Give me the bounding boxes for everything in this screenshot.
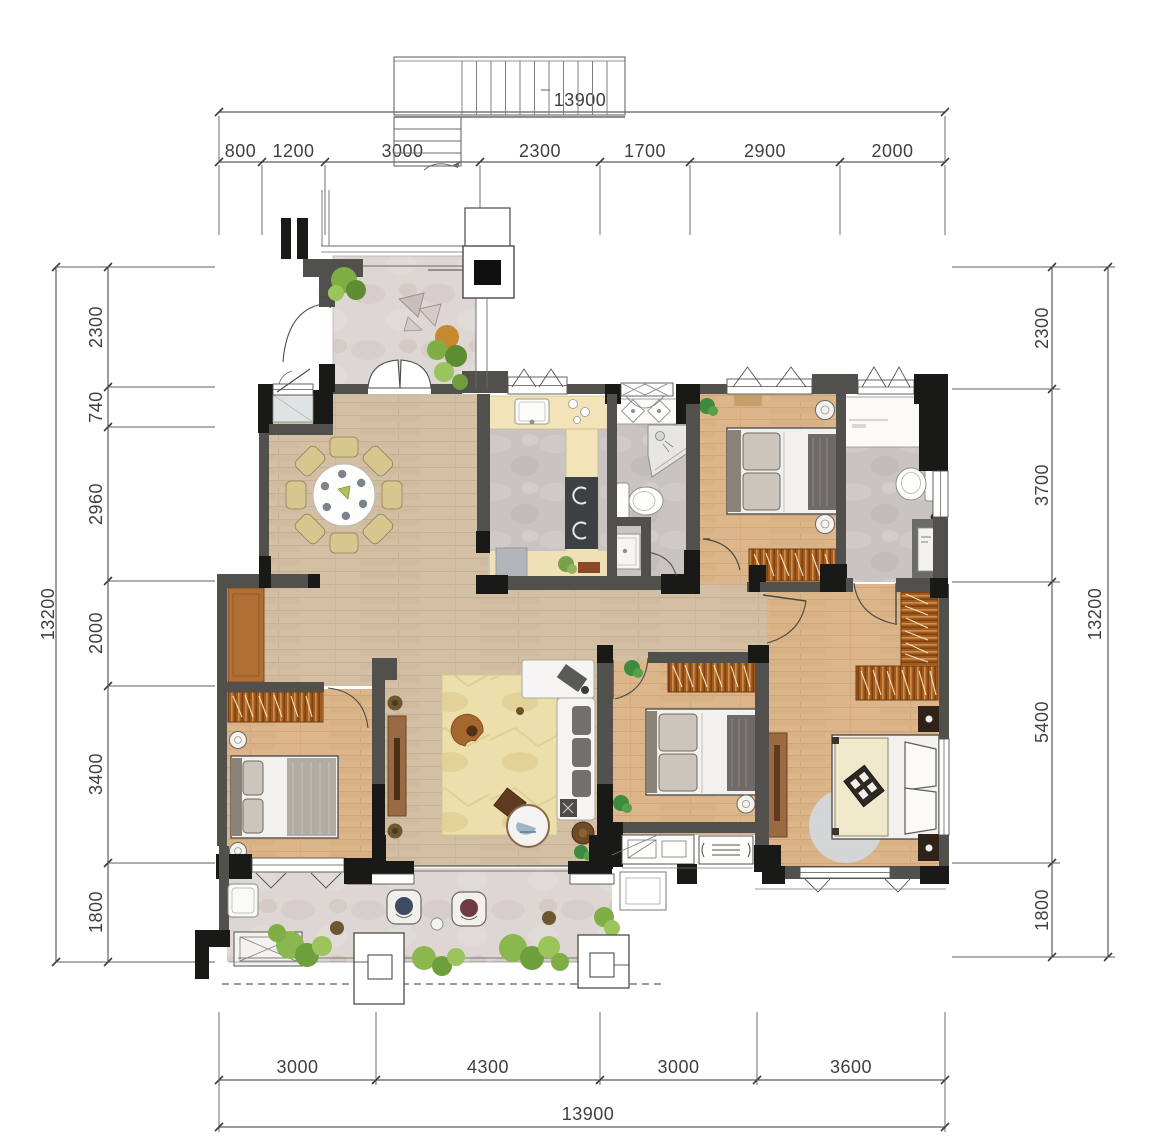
svg-text:1700: 1700	[624, 141, 666, 161]
svg-text:2900: 2900	[744, 141, 786, 161]
svg-text:740: 740	[86, 391, 106, 423]
svg-text:2960: 2960	[86, 483, 106, 525]
svg-text:1800: 1800	[86, 891, 106, 933]
svg-text:2300: 2300	[519, 141, 561, 161]
svg-text:13900: 13900	[562, 1104, 615, 1124]
svg-text:13200: 13200	[1085, 588, 1105, 641]
svg-text:3600: 3600	[830, 1057, 872, 1077]
svg-text:3400: 3400	[86, 753, 106, 795]
svg-text:13200: 13200	[38, 588, 58, 641]
svg-text:5400: 5400	[1032, 701, 1052, 743]
svg-text:3700: 3700	[1032, 464, 1052, 506]
svg-text:2300: 2300	[86, 306, 106, 348]
svg-text:2000: 2000	[86, 612, 106, 654]
svg-text:1800: 1800	[1032, 889, 1052, 931]
svg-text:4300: 4300	[467, 1057, 509, 1077]
svg-text:3000: 3000	[276, 1057, 318, 1077]
svg-text:3000: 3000	[381, 141, 423, 161]
svg-text:2300: 2300	[1032, 307, 1052, 349]
svg-text:2000: 2000	[871, 141, 913, 161]
svg-text:3000: 3000	[657, 1057, 699, 1077]
svg-text:800: 800	[225, 141, 257, 161]
svg-text:13900: 13900	[554, 90, 607, 110]
svg-text:1200: 1200	[272, 141, 314, 161]
